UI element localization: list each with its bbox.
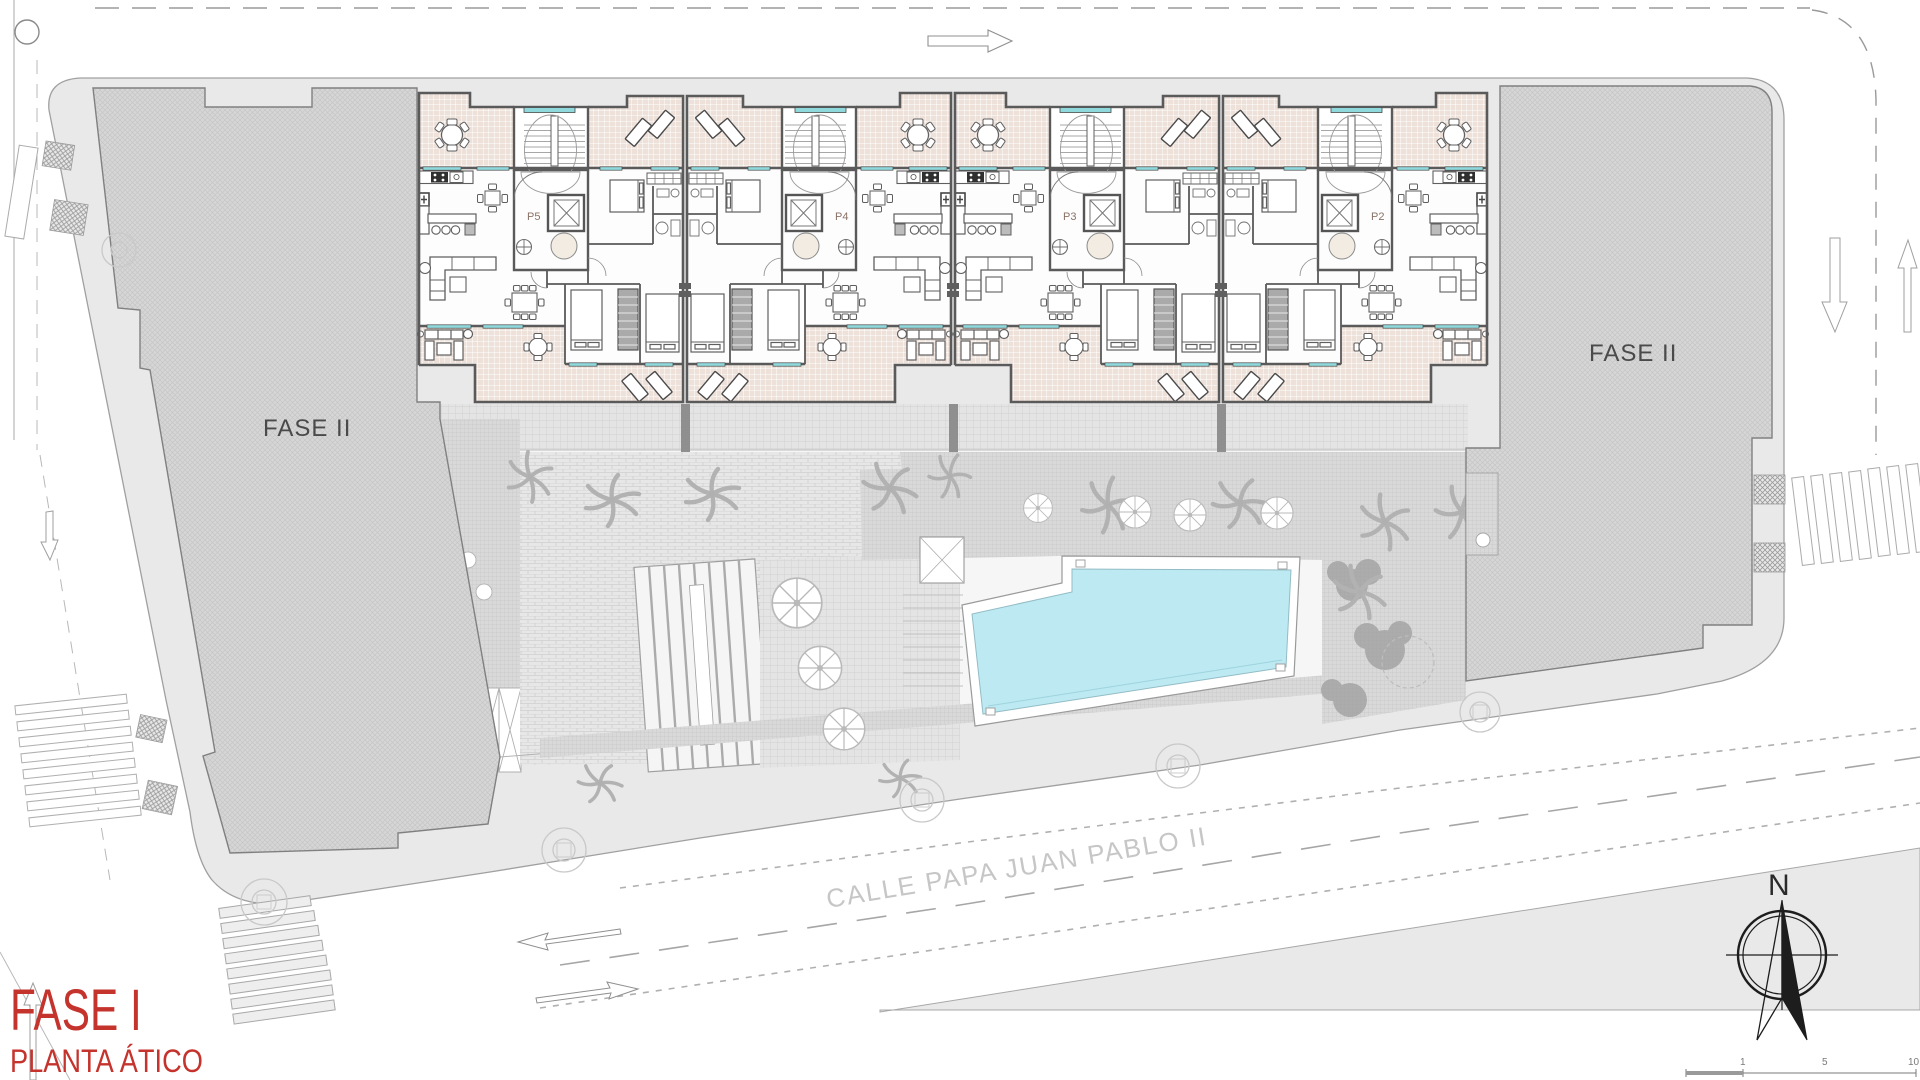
svg-text:5: 5 (1822, 1057, 1828, 1068)
svg-text:FASE II: FASE II (1589, 340, 1677, 367)
svg-text:10: 10 (1908, 1057, 1920, 1068)
svg-text:P3: P3 (1063, 211, 1076, 223)
svg-text:N: N (1768, 869, 1790, 902)
svg-text:P5: P5 (527, 211, 540, 223)
svg-text:P4: P4 (835, 211, 848, 223)
svg-text:PLANTA ÁTICO: PLANTA ÁTICO (10, 1044, 203, 1080)
svg-text:FASE II: FASE II (263, 415, 351, 442)
svg-text:1: 1 (1740, 1057, 1746, 1068)
svg-text:FASE I: FASE I (10, 977, 142, 1042)
svg-text:P2: P2 (1371, 211, 1384, 223)
